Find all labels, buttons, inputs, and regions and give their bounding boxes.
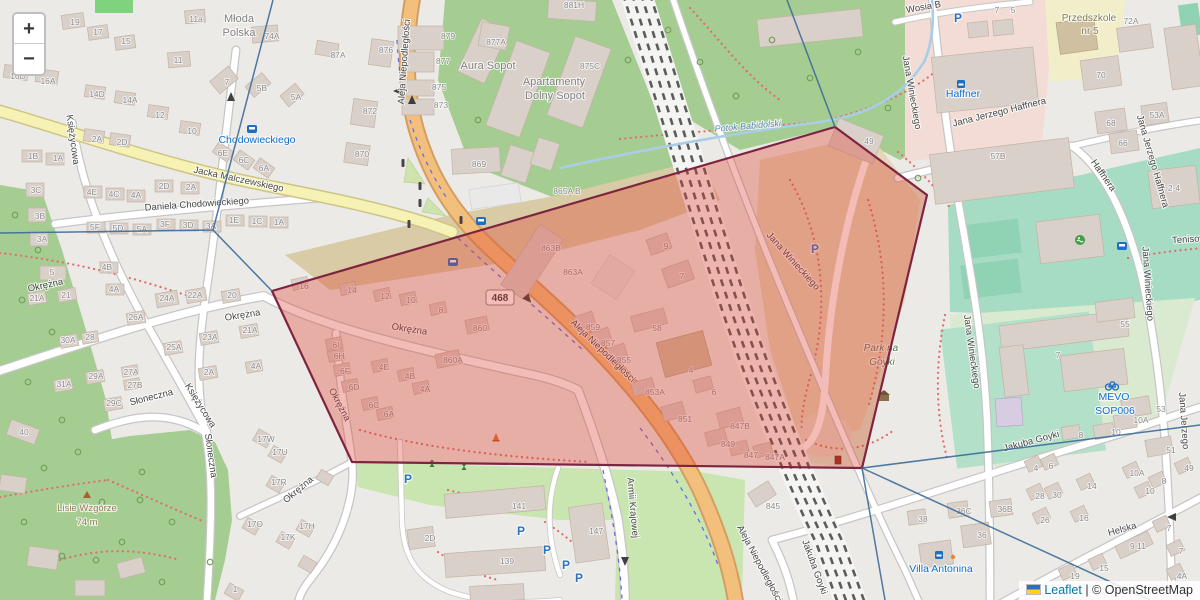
map-label: 3A [37, 234, 48, 244]
map-label: 53 [1156, 404, 1166, 414]
map-label: nr 5 [1081, 26, 1099, 37]
map-label: 2D [425, 533, 436, 543]
map-label: 16A [40, 76, 55, 86]
map-label: 7 [1056, 350, 1061, 360]
map-label: Chodowieckiego [218, 134, 295, 146]
map-label: 875 [432, 82, 446, 92]
map-label: 6C [239, 155, 250, 165]
map-label: 3C [31, 185, 42, 195]
map-label: 31A [56, 379, 71, 389]
map-label: 26 [1040, 515, 1050, 525]
map-label: 57B [990, 151, 1005, 161]
hotel-icon [935, 551, 943, 559]
map-label: 1C [252, 216, 263, 226]
map-label: 16 [1079, 513, 1089, 523]
ukraine-flag-icon [1026, 584, 1041, 595]
map-label: 22A [187, 290, 202, 300]
map-label: 5A [291, 92, 302, 102]
map-label: P [954, 11, 962, 25]
map-label: 23A [202, 332, 217, 342]
forest-area [0, 430, 232, 600]
map-label: 869 [472, 159, 486, 169]
map-label: 2A [186, 182, 197, 192]
map-label: SOP006 [1095, 405, 1135, 417]
map-label: 30 [1052, 490, 1062, 500]
map-label: 17R [271, 477, 287, 487]
map-label: 14D [89, 89, 105, 99]
map-label: Młoda [224, 13, 255, 25]
map-label: 25A [166, 342, 181, 352]
map-label: 881H [564, 0, 584, 10]
map-label: Lisie Wzgórze [57, 503, 117, 514]
map-label: 1 [233, 584, 238, 594]
map-label: 10 [187, 126, 197, 136]
map-label: 7 [1167, 523, 1172, 533]
map-label: 40 [19, 427, 29, 437]
map-label: 19 [1070, 571, 1080, 581]
hotel-icon [957, 80, 965, 88]
map-label: 9 11 [1130, 541, 1146, 551]
map-label: Polska [222, 27, 256, 39]
map-label: 4A [251, 361, 262, 371]
map-label: 24A [159, 293, 174, 303]
map-label: 865A B [553, 186, 581, 196]
map-label: 26A [128, 312, 143, 322]
map-label: 28 [85, 332, 95, 342]
map-label: 6 [1049, 461, 1054, 471]
map-label: 4B [102, 262, 113, 272]
map-label: 15 [1099, 563, 1109, 573]
map-label: 10 [1145, 486, 1155, 496]
zoom-control: + − [12, 12, 46, 76]
map-label: 1B [28, 151, 39, 161]
map-label: 4A [109, 284, 120, 294]
map-label: 17W [257, 434, 274, 444]
map-label: 55 [1120, 319, 1130, 329]
map-label: 29C [106, 398, 122, 408]
map-label: 17 [93, 27, 103, 37]
map-label: 872 [363, 106, 377, 116]
map-label: 139 [500, 556, 514, 566]
map-label: 21A [29, 293, 44, 303]
map-label: 87A [330, 50, 345, 60]
map-label: P [517, 524, 525, 538]
bus-stop-icon [476, 217, 486, 225]
map-label: 1E [229, 215, 240, 225]
map-label: 51 [1166, 445, 1176, 455]
map-label: P [404, 472, 412, 486]
map-label: 29A [88, 371, 103, 381]
map-label: 2A [204, 367, 215, 377]
map-label: 4A [131, 190, 142, 200]
map-label: 3F [160, 219, 170, 229]
signal-icon [402, 159, 405, 167]
map-label: Tenisowa [1172, 233, 1200, 247]
map-label: 2-4 [1168, 183, 1181, 193]
map-label: 6E [218, 148, 229, 158]
map-label: 27B [127, 380, 142, 390]
map-label: 10A [1129, 468, 1144, 478]
map-label: 74A [264, 31, 279, 41]
voronoi-boundary-line [862, 468, 885, 600]
swimming-icon [1075, 235, 1085, 245]
leaflet-link[interactable]: Leaflet [1044, 583, 1082, 597]
map-label: P [562, 558, 570, 572]
map-label: 17K [280, 532, 295, 542]
map-label: 20 [227, 290, 237, 300]
bus-stop-icon [247, 125, 257, 133]
map-label: 7 [995, 5, 1000, 15]
map-label: MEVO [1099, 391, 1130, 403]
map-label: 53A [1149, 110, 1164, 120]
map-label: 49 [1184, 463, 1194, 473]
map-label: 875C [580, 61, 600, 71]
map-label: 14A [122, 95, 137, 105]
map-label: 11a [189, 14, 203, 24]
map-label: 17O [247, 519, 263, 529]
map-label: 4C [109, 189, 120, 199]
playground-area [95, 0, 133, 13]
map-label: 2D [117, 137, 128, 147]
map-label: 877A [486, 37, 506, 47]
map-label: Przedszkole [1062, 13, 1117, 24]
map-label: Księżycowa [64, 114, 82, 166]
map-label: 70 [1096, 70, 1106, 80]
map-label: 1A [274, 217, 285, 227]
map-label: P [543, 543, 551, 557]
map-label: P [575, 571, 583, 585]
map-label: 14 [1087, 481, 1097, 491]
map-label: Jana Jerzego [1176, 392, 1191, 450]
map-label: 4 [1034, 463, 1039, 473]
map-label: 147 [589, 526, 603, 536]
bus-stop-icon [1117, 242, 1127, 250]
zoom-in-button[interactable]: + [14, 14, 44, 44]
map-label: 5B [257, 83, 268, 93]
map-label: 2A [92, 134, 103, 144]
map-label: 27A [123, 367, 138, 377]
map-label: Dolny Sopot [525, 90, 585, 102]
map-label: 3D [183, 220, 194, 230]
map-label: 19 [70, 17, 80, 27]
map-label: 74 m [76, 517, 97, 528]
map-label: 1A [53, 153, 64, 163]
map-label: 7 [225, 77, 230, 87]
map-label: Villa Antonina [909, 563, 973, 575]
signal-icon [460, 216, 463, 224]
map-canvas[interactable]: Jacka MalczewskiegoDaniela Chodowieckieg… [0, 0, 1200, 600]
zoom-out-button[interactable]: − [14, 44, 44, 74]
map-label: 21A [242, 325, 257, 335]
map-label: 2D [159, 181, 170, 191]
map-label: 877 [436, 56, 450, 66]
map-label: 845 [766, 501, 780, 511]
orange-dot-icon [951, 555, 955, 559]
map-label: Aura Sopot [460, 60, 515, 72]
map-label: 36 [977, 530, 987, 540]
map-label: 5 [50, 267, 55, 277]
map-label: 68 [1106, 118, 1116, 128]
openstreetmap-link[interactable]: © OpenStreetMap [1092, 583, 1193, 597]
map-label: 12 [155, 110, 165, 120]
map-label: 49 [864, 136, 874, 146]
map-label: 141 [512, 501, 526, 511]
signal-icon [408, 220, 411, 228]
map-label: 21 [61, 290, 71, 300]
attribution-separator: | [1085, 583, 1088, 597]
map-label: 11 [174, 55, 183, 65]
map-label: 30A [60, 335, 75, 345]
map-label: 36B [997, 504, 1012, 514]
map-label: 5A [137, 224, 148, 234]
map-label: 38 [918, 514, 928, 524]
map-label: 4A [1177, 571, 1188, 581]
map-app: Jacka MalczewskiegoDaniela Chodowieckieg… [0, 0, 1200, 600]
map-label: 28 [1035, 491, 1045, 501]
map-label: 8 [1162, 476, 1167, 486]
map-label: 4E [87, 187, 98, 197]
map-label: 6A [259, 163, 270, 173]
signal-icon [419, 182, 422, 190]
map-label: 870 [355, 149, 369, 159]
map-label: 873 [434, 100, 448, 110]
map-label: Apartamenty [523, 76, 586, 88]
attribution-bar: Leaflet | © OpenStreetMap [1019, 581, 1200, 600]
map-label: 876 [379, 45, 393, 55]
signal-icon [419, 199, 422, 207]
map-label: 72A [1123, 16, 1138, 26]
map-label: Haffner [946, 88, 981, 100]
map-label: 17H [299, 521, 315, 531]
map-label: 7 [1179, 546, 1184, 556]
map-label: 879 [441, 31, 455, 41]
map-label: 8 [1079, 430, 1084, 440]
map-label: 17U [272, 447, 288, 457]
map-label: 5F [90, 222, 100, 232]
map-label: 5 [1011, 5, 1016, 15]
map-label: 3B [35, 211, 46, 221]
map-label: Okrężna [224, 307, 262, 324]
map-label: 66 [1118, 138, 1128, 148]
map-label: 15 [121, 36, 131, 46]
map-label: 10A [1133, 415, 1148, 425]
